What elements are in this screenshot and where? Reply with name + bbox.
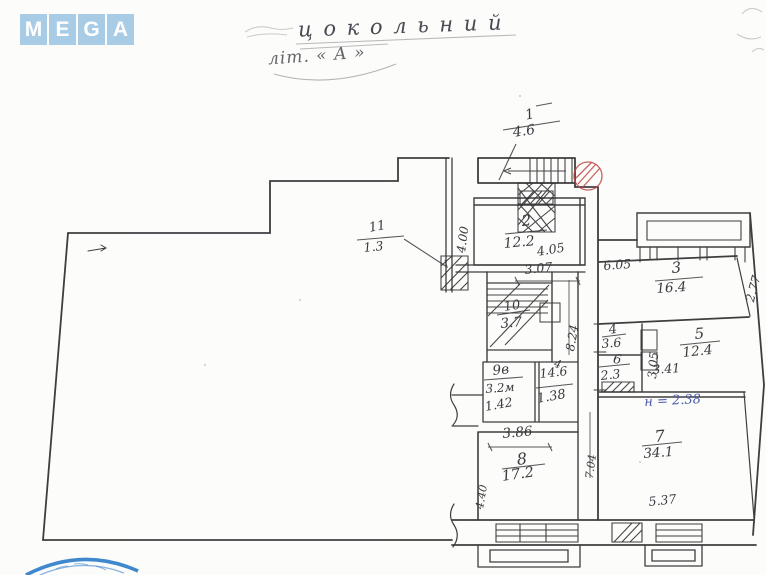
dim-room3-top: 6.05 [603, 258, 632, 272]
room-11-area: 1.3 [363, 240, 384, 255]
dim-room5-bottom: 3.41 [652, 362, 681, 376]
room-2-number: 2 [521, 213, 532, 229]
red-seal-mark [574, 162, 602, 190]
room-7-number: 7 [654, 428, 666, 445]
room-4-area: 3.6 [601, 337, 622, 351]
room-2-area: 12.2 [503, 234, 535, 251]
room-9-number: 9в [492, 363, 510, 378]
room-7-area: 34.1 [643, 446, 674, 462]
dim-room7-bottom: 5.37 [648, 493, 677, 508]
room-5-number: 5 [694, 326, 705, 342]
room-10-area: 3.7 [500, 316, 523, 331]
dim-room2-width: 4.00 [455, 226, 471, 254]
room-5-area: 12.4 [682, 344, 713, 361]
room-3-number: 3 [671, 260, 682, 276]
room-11-number: 11 [368, 219, 387, 235]
room-6-area: 2.3 [600, 368, 621, 383]
room-10-number: 10 [503, 299, 521, 314]
dim-room2-bottom: 3.07 [524, 261, 553, 276]
floor-plan-drawing [0, 0, 766, 575]
blue-stamp [26, 559, 138, 575]
height-note: н = 2.38 [644, 393, 701, 409]
dim-room7-left: 7.04 [584, 454, 598, 480]
room-9-area: 3.2м [485, 381, 515, 395]
scanned-floor-plan-page: M E G A ц о к о л ь н и й літ. « А » [0, 0, 766, 575]
room-3-area: 16.4 [656, 281, 687, 297]
room-1-area: 4.6 [512, 123, 536, 140]
dim-room8-top: 3.86 [502, 425, 533, 441]
